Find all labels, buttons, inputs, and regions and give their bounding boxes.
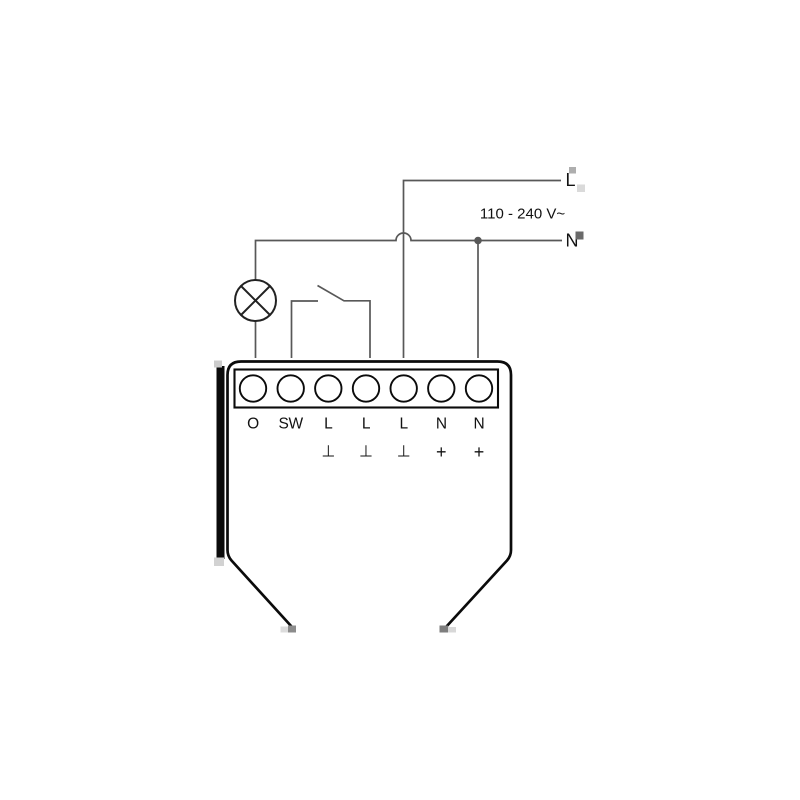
terminal-screw-sw (278, 375, 304, 401)
wiring-diagram-canvas: L 110 - 240 V~ N O SW L L L N N ⊥ ⊥ ⊥ + … (0, 0, 800, 800)
voltage-label: 110 - 240 V~ (480, 206, 565, 223)
wiring-diagram: L 110 - 240 V~ N O SW L L L N N ⊥ ⊥ ⊥ + … (0, 0, 800, 800)
artifact-square (577, 185, 585, 193)
artifact-square (288, 626, 296, 633)
terminal-screw-n2 (466, 375, 492, 401)
terminal-screw-n1 (428, 375, 454, 401)
terminal-label-sw: SW (279, 416, 304, 433)
terminal-label-l1: L (324, 416, 333, 433)
terminal-label-o: O (247, 416, 259, 433)
terminal-label-n1: N (436, 416, 447, 433)
terminal-screw-l1 (315, 375, 341, 401)
junction-dot (474, 237, 482, 245)
terminal-mark-l3: ⊥ (397, 442, 411, 461)
artifact-square (281, 627, 289, 633)
terminal-screw-l3 (391, 375, 417, 401)
artifact-square (448, 627, 456, 633)
terminal-screw-o (240, 375, 266, 401)
lamp-icon (235, 280, 276, 321)
terminal-mark-n2: + (474, 442, 485, 462)
artifact-square (569, 167, 576, 174)
terminal-label-l3: L (400, 416, 409, 433)
relay-device (217, 362, 512, 628)
terminal-mark-l1: ⊥ (321, 442, 335, 461)
artifact-square (440, 626, 449, 633)
terminal-mark-l2: ⊥ (359, 442, 373, 461)
terminal-label-n2: N (474, 416, 485, 433)
artifact-square (214, 361, 222, 368)
switch-wires (292, 286, 371, 359)
artifact-square (576, 232, 584, 240)
terminal-label-l2: L (362, 416, 371, 433)
terminal-screw-l2 (353, 375, 379, 401)
terminal-mark-n1: + (436, 442, 447, 462)
neutral-supply-wire (256, 233, 563, 280)
labels: L 110 - 240 V~ N O SW L L L N N ⊥ ⊥ ⊥ + … (247, 170, 578, 462)
device-side-bar (217, 366, 225, 559)
artifact-square (214, 558, 224, 567)
